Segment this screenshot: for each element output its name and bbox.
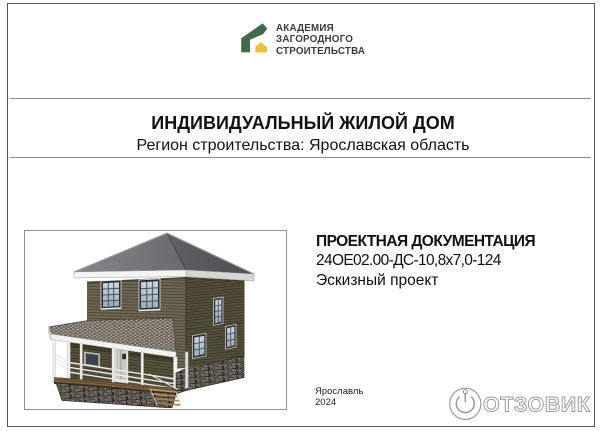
- svg-text:ОТЗОВИК: ОТЗОВИК: [483, 393, 591, 417]
